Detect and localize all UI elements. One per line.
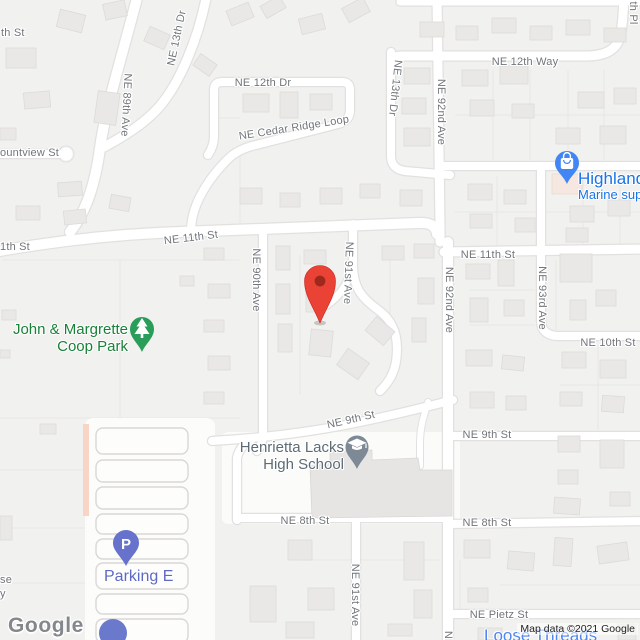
street-label: NE 11th St <box>461 249 515 261</box>
street-label: NE 12th Way <box>492 56 559 68</box>
street-label: y <box>0 588 6 600</box>
street-label: 1th St <box>0 241 30 253</box>
street-label: th Pl <box>627 1 639 24</box>
street-label: NE 9th St <box>463 429 512 441</box>
parking-label[interactable]: Parking E <box>104 568 173 586</box>
street-label: th St <box>1 27 25 39</box>
street-label: NE 93rd Ave <box>536 266 548 330</box>
street-label: NE Pietz St <box>470 609 528 621</box>
parking-aisles <box>96 428 188 640</box>
street-label: NE 10th St <box>580 337 635 349</box>
school-label[interactable]: Henrietta Lacks High School <box>220 440 344 474</box>
street-label: se <box>0 574 12 586</box>
google-logo[interactable]: Google <box>8 614 84 638</box>
park-name-line1: John & Margrette <box>8 322 128 339</box>
map-attribution: Map data ©2021 Google <box>517 623 638 635</box>
street-label: NE 8th St <box>463 517 512 529</box>
school-name-line2: High School <box>220 457 344 474</box>
street-label: NE 92nd Ave <box>442 631 454 640</box>
school-name-line1: Henrietta Lacks <box>220 440 344 457</box>
street-label: NE 90th Ave <box>250 248 262 311</box>
street-label: ountview St <box>0 147 59 159</box>
street-label: NE 12th Dr <box>235 77 291 89</box>
park-name-line2: Coop Park <box>8 339 128 356</box>
street-label: NE 92nd Ave <box>443 267 455 333</box>
store-name-line1: Highland <box>578 170 640 188</box>
street-label: NE 91st Ave <box>341 242 355 305</box>
street-label: NE 8th St <box>281 515 330 527</box>
street-label: NE 91st Ave <box>349 564 361 627</box>
park-label[interactable]: John & Margrette Coop Park <box>8 322 128 356</box>
road-stub <box>83 424 89 516</box>
marine-store-label[interactable]: Highland Marine suppl <box>578 170 640 201</box>
map-viewport[interactable]: th St NE 13th Dr NE 89th Ave NE 12th Dr … <box>0 0 640 640</box>
store-name-line2: Marine suppl <box>578 188 640 202</box>
street-label: NE 92nd Ave <box>435 79 447 145</box>
